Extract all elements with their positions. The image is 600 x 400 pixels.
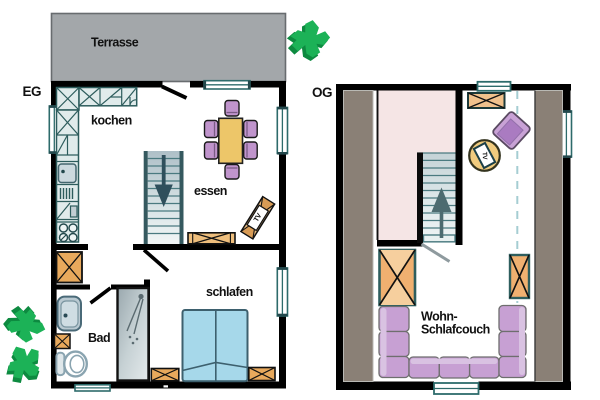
svg-text:essen: essen: [194, 184, 227, 198]
svg-text:Bad: Bad: [88, 331, 110, 345]
svg-text:Wohn-: Wohn-: [421, 310, 457, 324]
svg-text:OG: OG: [312, 85, 332, 100]
svg-text:schlafen: schlafen: [206, 285, 253, 299]
svg-text:EG: EG: [23, 84, 42, 99]
svg-text:Terrasse: Terrasse: [91, 36, 139, 50]
svg-text:Schlafcouch: Schlafcouch: [421, 323, 490, 337]
svg-text:kochen: kochen: [91, 114, 132, 128]
